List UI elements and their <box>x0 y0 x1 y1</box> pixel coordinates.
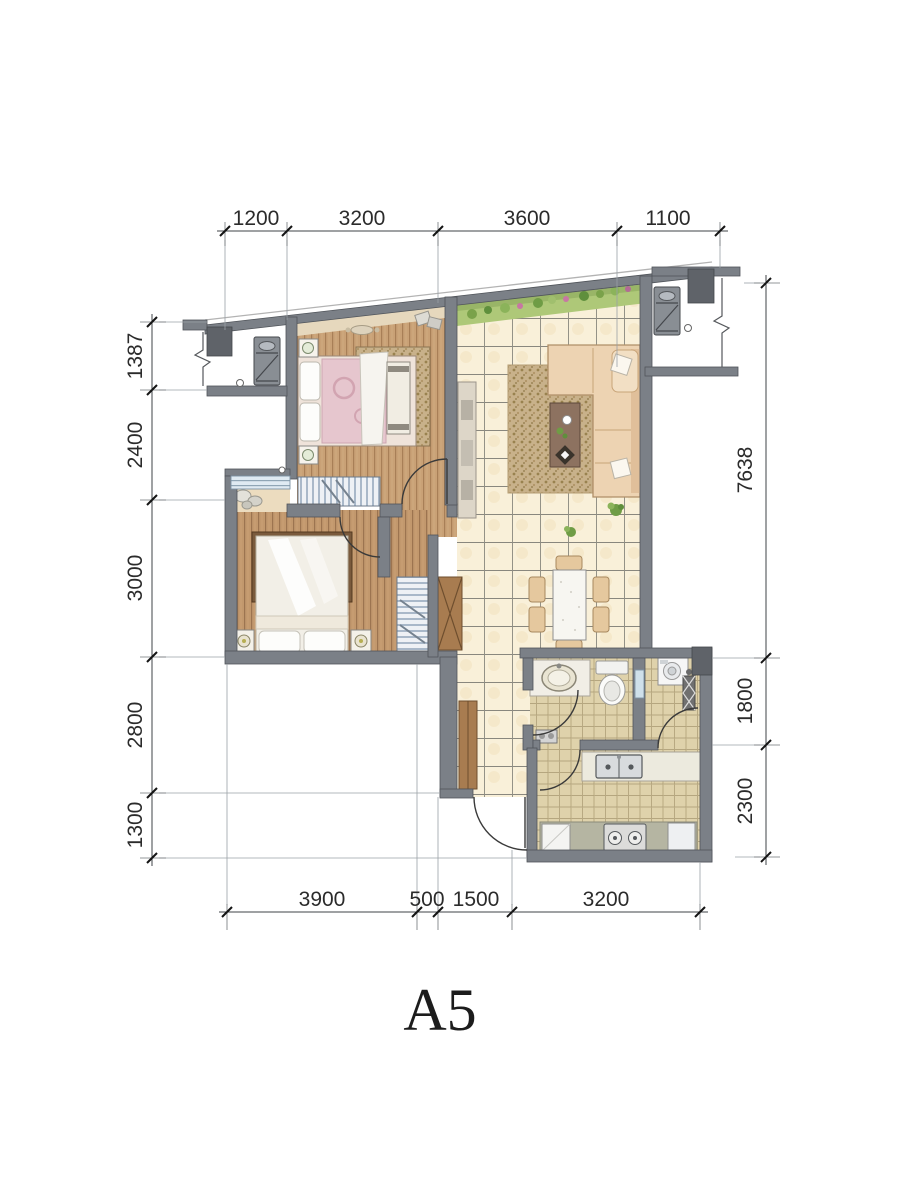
wall-hall-left <box>440 657 457 797</box>
wall-stub-top-left <box>183 320 207 330</box>
dim-label: 500 <box>409 888 444 911</box>
column-top-right <box>688 269 714 303</box>
wall-bedroom2-left <box>225 476 237 657</box>
dim-label: 2800 <box>124 702 147 749</box>
wall-bath-left-a <box>523 658 533 690</box>
bed-2 <box>252 532 352 654</box>
bed-1 <box>298 347 430 446</box>
bathroom-window <box>635 670 644 698</box>
dining-chair <box>529 607 545 632</box>
unit-label: A5 <box>403 977 476 1043</box>
dim-label: 3200 <box>583 888 630 911</box>
dining-chair <box>529 577 545 602</box>
wardrobe-bedroom1 <box>298 477 380 506</box>
dimension-right: 7638 1800 2300 <box>734 275 780 865</box>
wall-bath-top <box>520 648 712 658</box>
dim-label: 2400 <box>124 422 147 469</box>
dim-label: 7638 <box>734 447 757 494</box>
ac-unit-left-icon <box>254 337 280 385</box>
wall-divider-a <box>287 504 340 517</box>
wall-kitchen-right <box>700 658 712 862</box>
dim-label: 1500 <box>453 888 500 911</box>
wardrobe-bedroom2 <box>397 577 428 655</box>
pillow <box>300 403 320 441</box>
dim-label: 3900 <box>299 888 346 911</box>
dimension-bottom: 3900 500 1500 3200 <box>219 888 708 930</box>
wall-stub-right <box>645 367 738 376</box>
footboard <box>387 362 410 434</box>
appliance <box>668 823 695 850</box>
ac-unit-right-icon <box>654 287 680 335</box>
tv-console <box>458 382 476 518</box>
wall-bedroom2-bottom <box>225 651 457 664</box>
wall-divider-c <box>447 504 457 517</box>
pillow <box>300 362 320 400</box>
dim-label: 1100 <box>645 207 690 230</box>
dim-label: 1387 <box>124 333 147 380</box>
wall-entry-left <box>440 789 473 798</box>
coffee-table <box>550 403 580 467</box>
dining-chair <box>593 577 609 602</box>
dim-label: 3000 <box>124 555 147 602</box>
toilet <box>596 661 628 705</box>
dim-label: 1200 <box>233 207 280 230</box>
kitchen-counter <box>540 822 697 852</box>
break-line-right <box>714 278 729 367</box>
column-top-left <box>207 327 232 356</box>
wall-stub-left-bottom <box>207 386 287 396</box>
door-arc-entry <box>474 797 527 850</box>
sofa-pillow <box>610 458 631 479</box>
wall-divider-b <box>380 504 402 517</box>
bathroom-sink-counter <box>530 660 590 696</box>
dining-table <box>553 570 586 640</box>
kitchen-island-sink <box>582 752 703 781</box>
wall-kitchen-bottom <box>527 850 712 862</box>
pillow <box>304 631 345 653</box>
tall-cabinet <box>438 577 462 650</box>
dim-label: 3200 <box>339 207 386 230</box>
wall-bath-left-b <box>523 725 533 750</box>
column-laundry <box>692 647 712 675</box>
dim-label: 1300 <box>124 802 147 849</box>
dining-chair <box>593 607 609 632</box>
dim-label: 2300 <box>734 778 757 825</box>
shoe-cabinet <box>459 701 477 789</box>
wall-bedroom2-right-upper <box>378 517 390 577</box>
dimension-left: 1387 2400 3000 2800 1300 <box>124 314 166 866</box>
dim-label: 1800 <box>734 678 757 725</box>
wall-kitchen-left <box>527 748 537 858</box>
wall-bedroom1-left <box>286 317 297 479</box>
dining-chair <box>556 556 582 570</box>
bay-window <box>231 476 290 489</box>
stove-icon <box>604 824 646 851</box>
wall-bath-bottom-b <box>580 740 658 750</box>
wall-bedroom2-right-lower <box>428 535 438 657</box>
wall-living-right <box>640 276 652 657</box>
pillow <box>259 631 300 653</box>
floorplan-canvas: 1200 3200 3600 1100 1387 2400 3000 2800 … <box>0 0 900 1200</box>
dimension-top: 1200 3200 3600 1100 <box>217 207 728 246</box>
dim-label: 3600 <box>504 207 551 230</box>
